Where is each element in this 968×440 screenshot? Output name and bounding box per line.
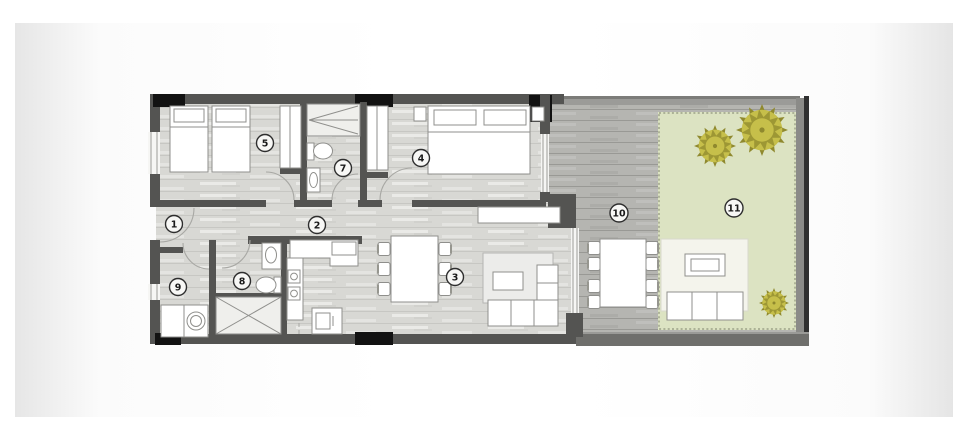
glass-door-bedroom4 — [541, 134, 549, 192]
outdoor-chair — [588, 296, 600, 309]
outdoor-sofa — [667, 292, 743, 320]
shower-wall — [216, 293, 282, 297]
room-label-8: 8 — [234, 273, 251, 290]
kitchen-counter-strip — [287, 258, 303, 320]
room-number: 3 — [452, 273, 459, 284]
sink — [307, 168, 320, 192]
pillar — [355, 332, 393, 345]
dining-chair — [378, 283, 390, 296]
dining-chair — [378, 263, 390, 276]
room-label-5: 5 — [257, 135, 274, 152]
sofa — [488, 300, 558, 326]
window-bedroom5 — [148, 132, 160, 174]
laundry-furniture — [161, 305, 208, 337]
dining-chair — [439, 243, 451, 256]
terrace-top-edge — [548, 96, 800, 99]
dining-chair — [378, 243, 390, 256]
outdoor-dining-table — [600, 239, 646, 307]
glass-door-living — [571, 228, 579, 313]
left-wall-seg — [150, 240, 160, 284]
outdoor-chair — [646, 242, 658, 255]
nightstand — [414, 107, 426, 121]
tv-sideboard — [478, 207, 560, 223]
double-bed — [428, 106, 530, 174]
room-number: 7 — [340, 164, 347, 175]
terrace-bottom-wall — [576, 334, 809, 346]
right-boundary-line — [804, 96, 809, 346]
room-label-11: 11 — [725, 199, 743, 217]
outdoor-chair — [646, 280, 658, 293]
room-number: 4 — [418, 154, 425, 165]
room-label-10: 10 — [610, 204, 628, 222]
dining-chair — [439, 283, 451, 296]
outdoor-chair — [646, 296, 658, 309]
room-number: 10 — [612, 209, 626, 220]
garden-furniture — [661, 239, 748, 320]
toilet-tank — [307, 143, 314, 160]
floor-plan-page: 1 2 3 4 5 7 8 — [0, 0, 968, 440]
dining-table — [391, 236, 438, 302]
toilet — [314, 143, 333, 159]
floor-plan-image: 1 2 3 4 5 7 8 — [0, 0, 968, 440]
toilet — [256, 277, 276, 293]
window-laundry — [148, 284, 160, 300]
single-bed — [212, 106, 250, 172]
room-label-4: 4 — [413, 150, 430, 167]
room-number: 1 — [171, 220, 178, 231]
room-label-1: 1 — [166, 216, 183, 233]
nightstand — [532, 107, 544, 121]
room-label-3: 3 — [447, 269, 464, 286]
bedroom-twin-furniture — [170, 106, 301, 172]
single-bed — [170, 106, 208, 172]
room-label-9: 9 — [170, 279, 187, 296]
room-label-7: 7 — [335, 160, 352, 177]
room-number: 8 — [239, 277, 246, 288]
outdoor-chair — [588, 258, 600, 271]
outdoor-chair — [646, 258, 658, 271]
coffee-table — [493, 272, 523, 290]
outdoor-chair — [588, 242, 600, 255]
outdoor-chair — [588, 280, 600, 293]
terrace-top-wall — [548, 99, 800, 105]
room-number: 5 — [262, 139, 269, 150]
room-number: 11 — [727, 204, 740, 215]
pillar — [153, 94, 185, 107]
room-number: 9 — [175, 283, 182, 294]
room-label-2: 2 — [309, 217, 326, 234]
room-number: 2 — [314, 221, 321, 232]
